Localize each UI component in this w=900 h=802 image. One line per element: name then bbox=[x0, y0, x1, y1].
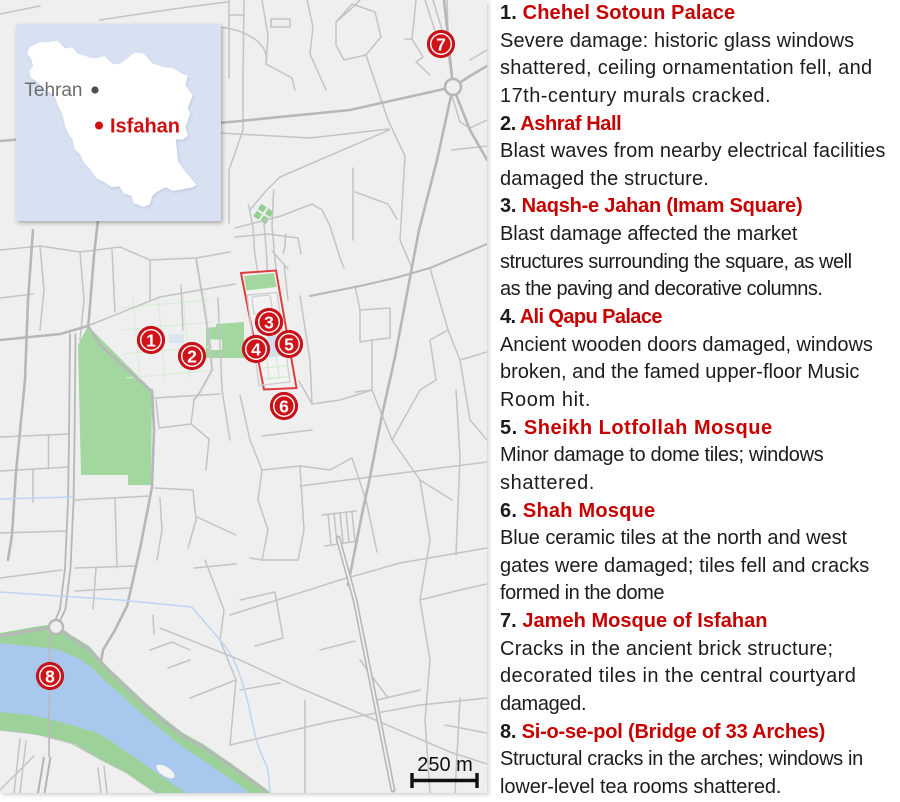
svg-text:6: 6 bbox=[279, 396, 289, 416]
svg-text:5: 5 bbox=[284, 334, 294, 354]
svg-text:8: 8 bbox=[45, 666, 55, 686]
svg-text:Tehran: Tehran bbox=[24, 80, 82, 101]
svg-text:250 m: 250 m bbox=[417, 754, 473, 776]
svg-text:2: 2 bbox=[187, 346, 197, 366]
svg-text:4: 4 bbox=[251, 339, 261, 359]
svg-text:3: 3 bbox=[264, 312, 274, 332]
svg-text:7: 7 bbox=[436, 34, 446, 54]
svg-text:1: 1 bbox=[146, 330, 156, 350]
svg-text:Isfahan: Isfahan bbox=[110, 116, 180, 138]
